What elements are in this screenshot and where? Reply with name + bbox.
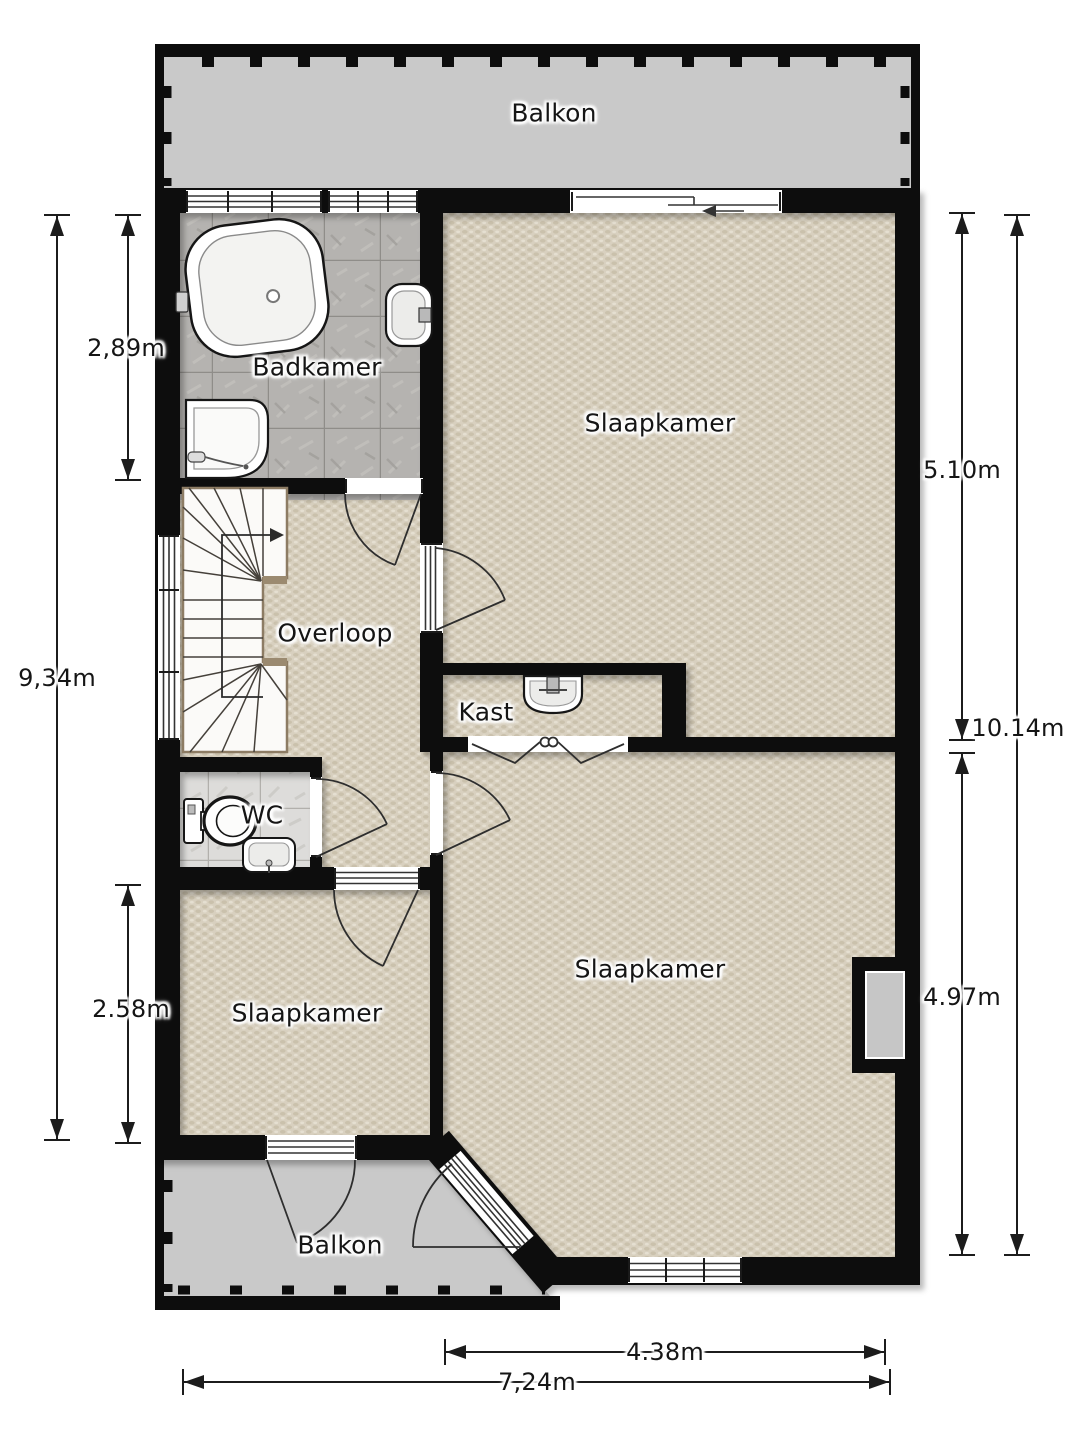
dim-label-left-full: 9,34m <box>18 664 96 692</box>
room-label-kast: Kast <box>459 698 514 727</box>
dim-label-right-top: 5.10m <box>923 456 1001 484</box>
bathroom-window <box>186 190 418 213</box>
bathtub <box>180 214 333 362</box>
bathtub-faucet <box>176 292 188 312</box>
room-label-badkamer: Badkamer <box>252 353 381 382</box>
dim-label-left-bottom: 2.58m <box>92 995 170 1023</box>
dim-label-right-full: 10.14m <box>971 714 1064 742</box>
room-label-slaapkamer-left: Slaapkamer <box>232 999 383 1028</box>
dim-label-bottom-full: 7,24m <box>498 1368 576 1396</box>
sliding-door <box>570 190 782 217</box>
bathroom-sink <box>386 284 432 346</box>
dim-label-right-bottom: 4.97m <box>923 983 1001 1011</box>
floorplan-drawing <box>0 0 1080 1440</box>
wall-niche <box>852 957 918 1073</box>
wc-sink <box>243 838 295 873</box>
dim-label-left-top: 2,89m <box>87 334 165 362</box>
bedroom-window-bottom <box>628 1257 742 1283</box>
dim-label-bottom-inner: 4.38m <box>626 1338 704 1366</box>
room-label-balkon-bottom: Balkon <box>297 1231 382 1260</box>
room-label-slaapkamer-right: Slaapkamer <box>575 955 726 984</box>
room-label-overloop: Overloop <box>277 619 392 648</box>
room-label-slaapkamer-top: Slaapkamer <box>585 409 736 438</box>
room-label-wc: WC <box>241 801 284 830</box>
room-label-balkon-top: Balkon <box>511 99 596 128</box>
shower-tray <box>186 400 268 478</box>
floorplan-page: Balkon Badkamer Slaapkamer Overloop Kast… <box>0 0 1080 1440</box>
stairs-window <box>158 535 180 740</box>
closet-sink <box>524 676 582 713</box>
